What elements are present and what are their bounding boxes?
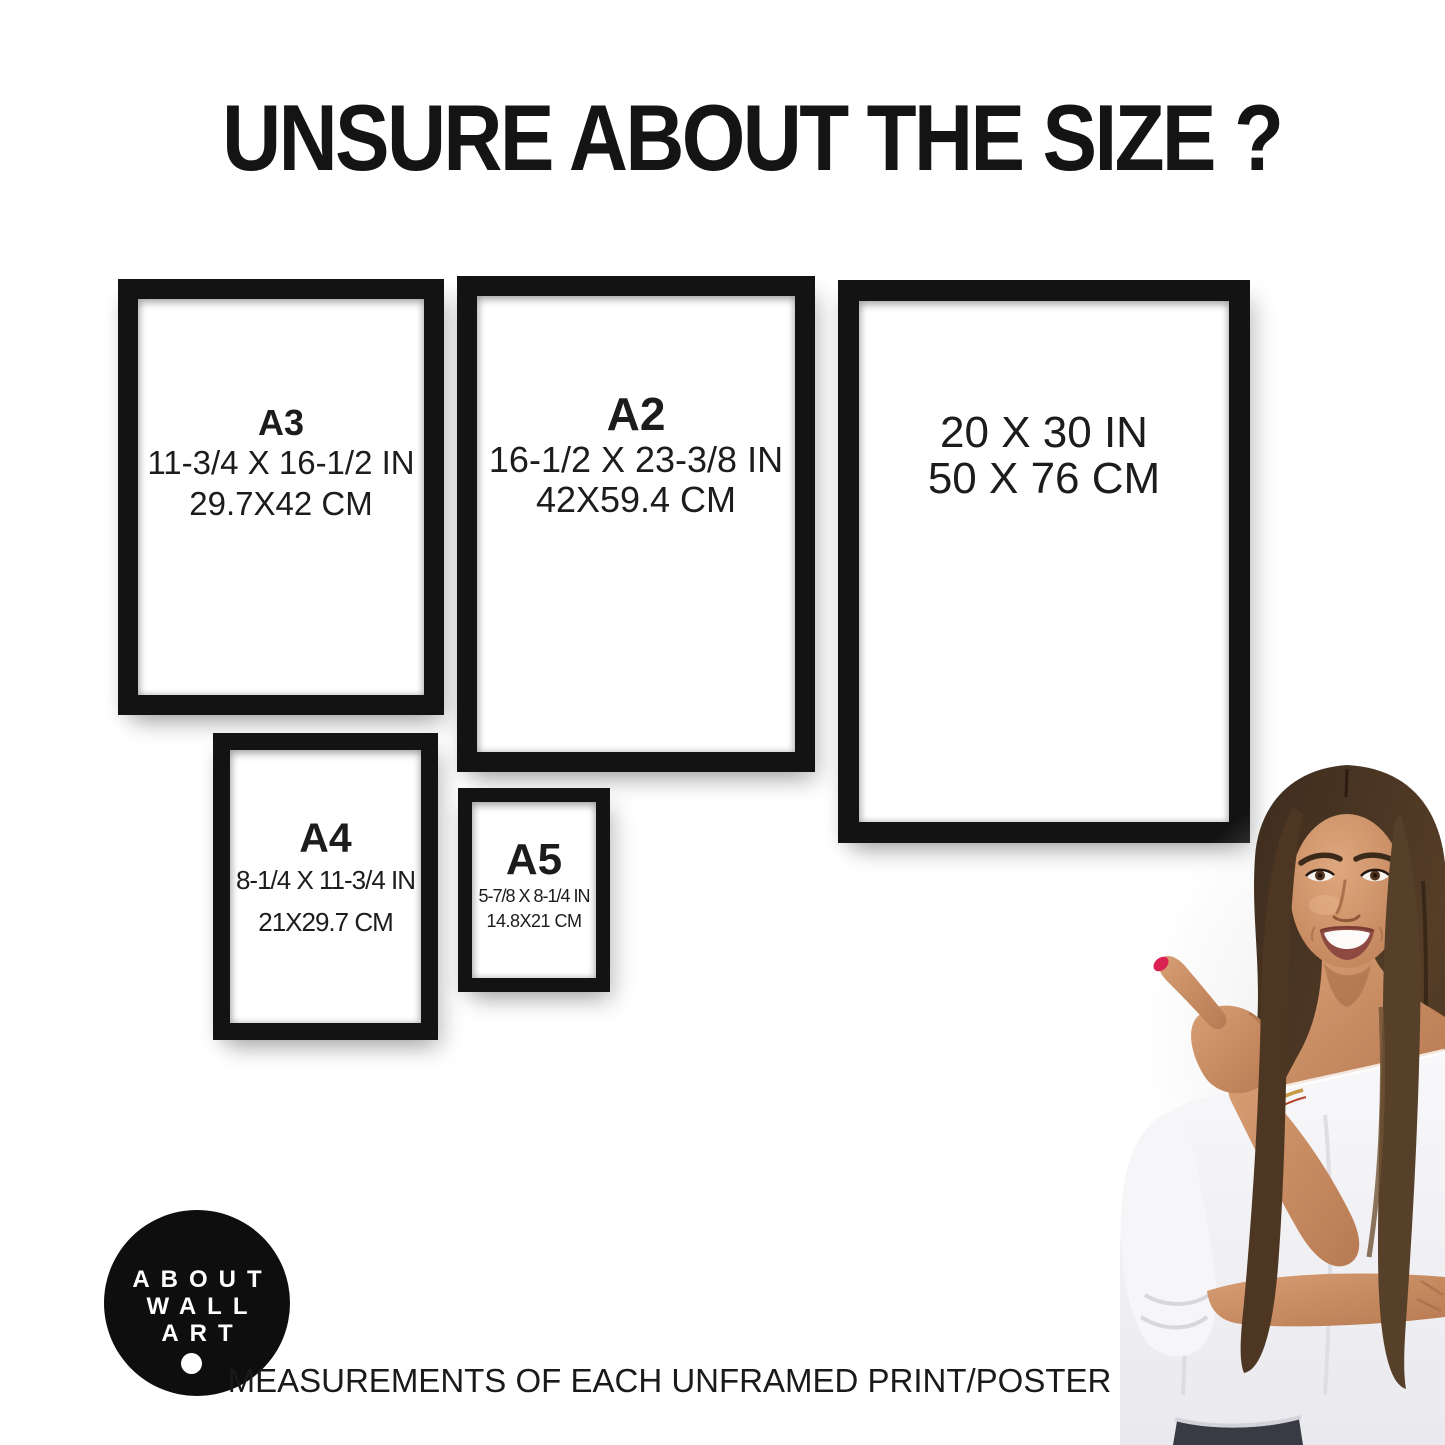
- size-inches-a5: 5-7/8 X 8-1/4 IN: [458, 886, 610, 907]
- logo-line-art: ART: [115, 1320, 290, 1347]
- logo-line-about: ABOUT: [115, 1266, 290, 1293]
- frame-mat-20x30: [859, 301, 1229, 822]
- size-label-a4: A4: [213, 815, 438, 862]
- size-cm-a2: 42X59.4 CM: [457, 479, 815, 521]
- size-inches-20x30: 20 X 30 IN: [838, 408, 1250, 458]
- right-pupil: [1373, 873, 1377, 877]
- size-guide-image: UNSURE ABOUT THE SIZE ? A3 11-3/4 X 16-1…: [0, 0, 1445, 1445]
- size-label-a2: A2: [457, 387, 815, 441]
- logo-text: ABOUT WALL ART: [104, 1266, 290, 1347]
- size-inches-a3: 11-3/4 X 16-1/2 IN: [118, 444, 444, 482]
- size-cm-a5: 14.8X21 CM: [458, 911, 610, 932]
- size-inches-a2: 16-1/2 X 23-3/8 IN: [457, 439, 815, 481]
- page-title-text: UNSURE ABOUT THE SIZE ?: [222, 84, 1281, 192]
- page-title: UNSURE ABOUT THE SIZE ?: [58, 84, 1445, 192]
- size-label-a5: A5: [458, 835, 610, 885]
- frame-mat-a2: [477, 296, 795, 752]
- size-frame-a4: A4 8-1/4 X 11-3/4 IN 21X29.7 CM: [213, 733, 438, 1040]
- size-label-a3: A3: [118, 402, 444, 444]
- logo-line-wall: WALL: [115, 1293, 290, 1320]
- size-frame-a3: A3 11-3/4 X 16-1/2 IN 29.7X42 CM: [118, 279, 444, 715]
- hair-part-line: [1346, 769, 1347, 797]
- woman-pointing-finger: [1159, 956, 1227, 1029]
- size-cm-a4: 21X29.7 CM: [213, 907, 438, 938]
- size-frame-a2: A2 16-1/2 X 23-3/8 IN 42X59.4 CM: [457, 276, 815, 772]
- size-cm-a3: 29.7X42 CM: [118, 485, 444, 523]
- size-inches-a4: 8-1/4 X 11-3/4 IN: [213, 865, 438, 896]
- size-frame-a5: A5 5-7/8 X 8-1/4 IN 14.8X21 CM: [458, 788, 610, 992]
- size-cm-20x30: 50 X 76 CM: [838, 454, 1250, 504]
- woman-photo: [1025, 755, 1445, 1445]
- left-pupil: [1318, 873, 1322, 877]
